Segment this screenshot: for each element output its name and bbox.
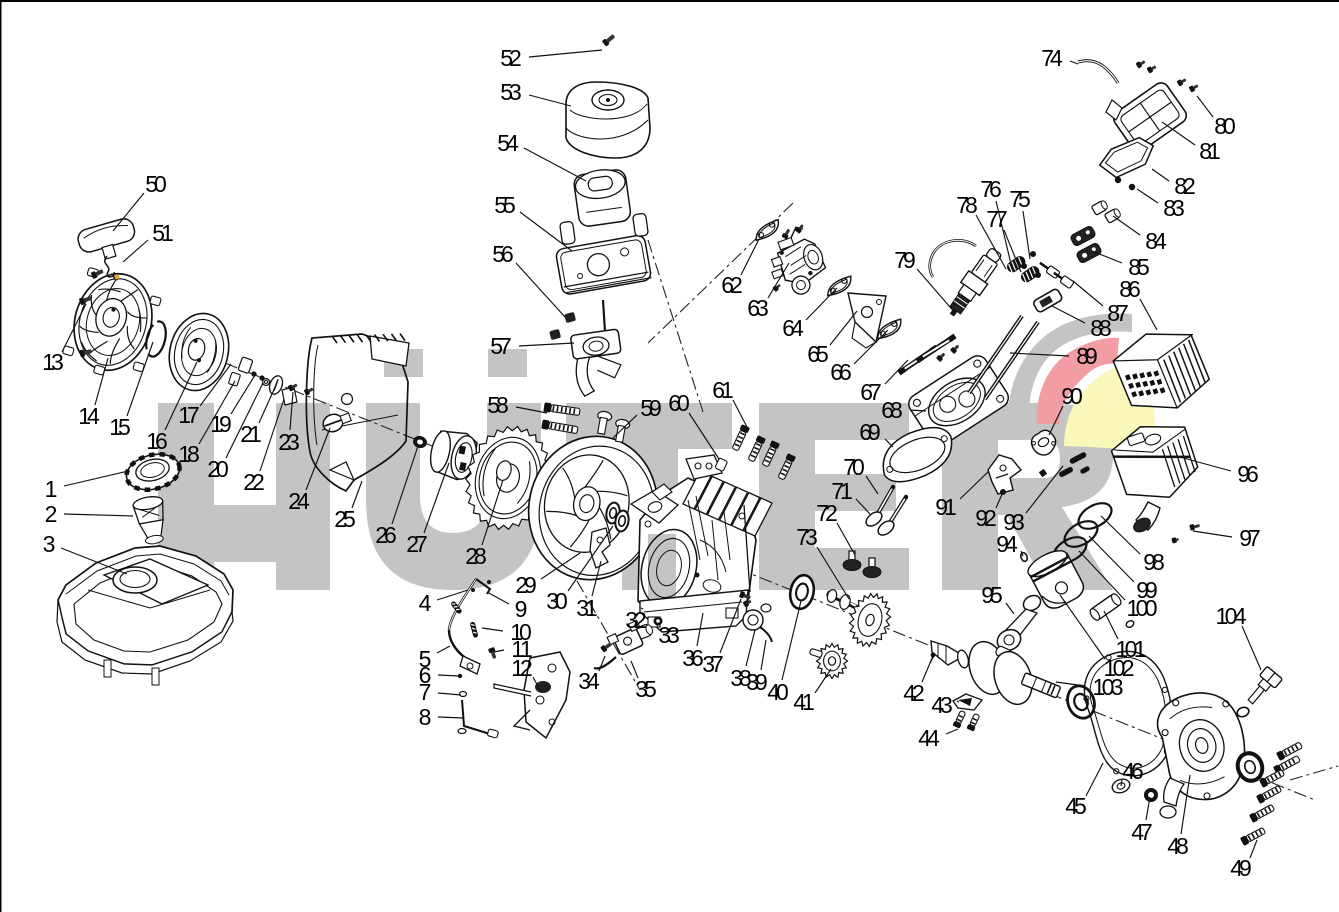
svg-text:48: 48 — [1167, 833, 1189, 859]
svg-text:68: 68 — [881, 397, 903, 423]
svg-text:60: 60 — [668, 390, 690, 416]
svg-text:37: 37 — [702, 651, 724, 677]
svg-text:91: 91 — [935, 494, 957, 520]
svg-text:65: 65 — [807, 341, 829, 367]
svg-text:64: 64 — [782, 315, 804, 341]
svg-text:23: 23 — [278, 429, 300, 455]
svg-text:20: 20 — [207, 456, 229, 482]
svg-text:7: 7 — [419, 679, 432, 705]
svg-text:97: 97 — [1239, 525, 1261, 551]
svg-text:58: 58 — [487, 392, 509, 418]
svg-text:84: 84 — [1145, 228, 1167, 254]
svg-text:24: 24 — [288, 488, 310, 514]
svg-text:95: 95 — [981, 582, 1003, 608]
svg-text:80: 80 — [1214, 113, 1236, 139]
svg-text:78: 78 — [956, 192, 978, 218]
svg-text:50: 50 — [145, 171, 167, 197]
svg-text:47: 47 — [1131, 819, 1153, 845]
svg-text:88: 88 — [1090, 315, 1112, 341]
svg-text:103: 103 — [1093, 674, 1124, 700]
svg-text:17: 17 — [178, 402, 200, 428]
svg-text:70: 70 — [843, 454, 865, 480]
svg-text:69: 69 — [859, 419, 881, 445]
svg-text:36: 36 — [682, 645, 704, 671]
svg-text:79: 79 — [894, 247, 916, 273]
svg-text:61: 61 — [712, 377, 734, 403]
svg-text:76: 76 — [980, 176, 1002, 202]
svg-text:45: 45 — [1065, 793, 1087, 819]
svg-text:19: 19 — [210, 411, 232, 437]
svg-text:52: 52 — [500, 45, 522, 71]
svg-text:89: 89 — [1076, 343, 1098, 369]
svg-text:15: 15 — [109, 414, 131, 440]
svg-text:55: 55 — [494, 192, 516, 218]
svg-text:66: 66 — [830, 359, 852, 385]
svg-text:56: 56 — [492, 241, 514, 267]
svg-text:96: 96 — [1237, 461, 1259, 487]
svg-text:39: 39 — [746, 669, 768, 695]
svg-text:46: 46 — [1122, 758, 1144, 784]
svg-text:83: 83 — [1163, 195, 1185, 221]
svg-text:25: 25 — [334, 506, 356, 532]
svg-text:30: 30 — [546, 588, 568, 614]
svg-text:74: 74 — [1041, 45, 1063, 71]
svg-text:32: 32 — [625, 607, 647, 633]
svg-text:51: 51 — [152, 220, 174, 246]
svg-text:43: 43 — [931, 692, 953, 718]
svg-text:21: 21 — [240, 421, 262, 447]
svg-text:28: 28 — [465, 543, 487, 569]
svg-text:98: 98 — [1143, 549, 1165, 575]
svg-text:62: 62 — [721, 272, 743, 298]
svg-text:49: 49 — [1230, 855, 1252, 881]
svg-text:42: 42 — [903, 680, 925, 706]
svg-text:81: 81 — [1199, 138, 1221, 164]
svg-text:12: 12 — [511, 655, 533, 681]
svg-text:18: 18 — [178, 441, 200, 467]
svg-text:44: 44 — [918, 725, 940, 751]
svg-text:34: 34 — [578, 668, 600, 694]
svg-text:14: 14 — [78, 403, 100, 429]
svg-text:33: 33 — [658, 622, 680, 648]
svg-text:26: 26 — [375, 522, 397, 548]
svg-text:54: 54 — [497, 130, 519, 156]
svg-text:2: 2 — [45, 501, 58, 527]
svg-text:3: 3 — [43, 531, 56, 557]
svg-text:8: 8 — [419, 704, 432, 730]
svg-text:16: 16 — [146, 428, 168, 454]
svg-text:94: 94 — [996, 531, 1018, 557]
svg-text:72: 72 — [816, 500, 838, 526]
svg-text:29: 29 — [515, 572, 537, 598]
svg-text:22: 22 — [243, 469, 265, 495]
svg-text:73: 73 — [796, 524, 818, 550]
svg-text:104: 104 — [1216, 603, 1247, 629]
svg-text:92: 92 — [975, 505, 997, 531]
svg-text:1: 1 — [45, 476, 58, 502]
svg-text:59: 59 — [640, 395, 662, 421]
svg-text:77: 77 — [986, 206, 1008, 232]
svg-text:40: 40 — [767, 679, 789, 705]
svg-text:4: 4 — [419, 590, 432, 616]
svg-text:75: 75 — [1009, 186, 1031, 212]
svg-text:35: 35 — [635, 676, 657, 702]
svg-text:86: 86 — [1119, 276, 1141, 302]
svg-text:67: 67 — [860, 379, 882, 405]
svg-text:100: 100 — [1127, 595, 1158, 621]
svg-text:41: 41 — [793, 689, 815, 715]
svg-text:53: 53 — [500, 79, 522, 105]
svg-text:31: 31 — [576, 595, 598, 621]
svg-text:27: 27 — [406, 531, 428, 557]
svg-text:13: 13 — [42, 349, 64, 375]
svg-text:63: 63 — [747, 295, 769, 321]
svg-text:57: 57 — [490, 333, 512, 359]
svg-text:90: 90 — [1061, 383, 1083, 409]
